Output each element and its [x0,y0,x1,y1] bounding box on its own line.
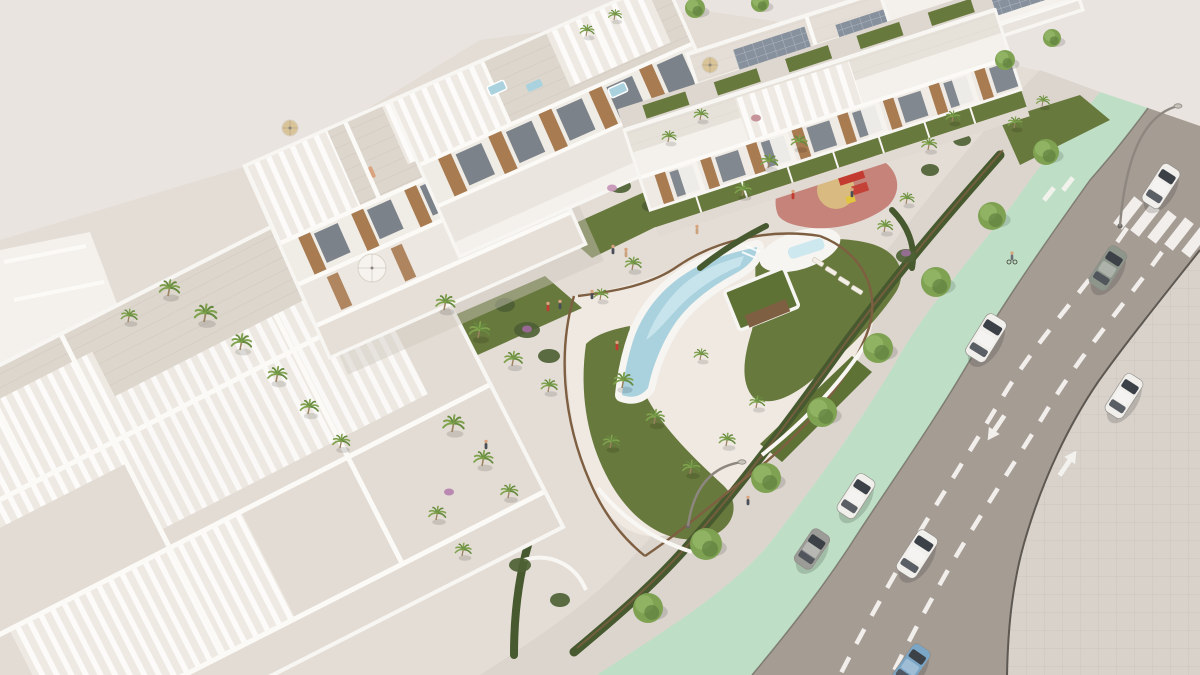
cyclist-head [1010,251,1013,254]
tree-canopy-shade [762,475,777,490]
person-body [747,499,750,505]
tree-canopy-shade [1043,149,1056,162]
person [791,190,794,200]
tree-canopy-shade [702,541,718,557]
palm-shadow [125,321,138,327]
person-body [559,303,562,309]
patio-umbrella [358,254,386,282]
person-body [547,305,550,311]
palm-shadow [508,365,522,371]
palm-shadow [723,445,736,451]
tree-canopy-shade [644,605,659,620]
person [624,248,627,258]
scene-render [0,0,1200,675]
palm-shadow [447,430,464,437]
patio-umbrella [282,120,298,136]
tree-canopy-shade [1050,36,1059,45]
palm-shadow [439,309,454,316]
flower-patch [901,250,911,257]
palm-shadow [617,387,632,394]
palm-shadow [686,473,700,479]
palm-shadow [753,407,765,412]
palm-shadow [504,497,518,503]
person-body [851,191,854,197]
person [558,300,561,310]
person-body [591,293,594,299]
palm-shadow [795,147,808,153]
person [615,341,618,351]
shrub-bed [509,558,531,572]
palm-shadow [881,231,893,236]
palm-shadow [583,36,594,41]
palm-shadow [612,20,622,25]
palm-shadow [304,413,318,419]
palm-shadow [764,167,778,173]
person-body [612,248,615,254]
palm-shadow [607,447,620,453]
palm-shadow [697,360,708,365]
lamp-head [738,460,746,464]
person [484,440,487,450]
palm-shadow [1011,128,1022,133]
person-head [590,290,593,293]
person-body [485,443,488,449]
person [611,245,614,255]
person-body [616,344,619,350]
flower-patch [607,185,617,192]
shrub-bed [550,593,570,607]
tree-canopy-shade [874,345,889,360]
palm-shadow [336,447,350,453]
tree-canopy-shade [989,213,1003,227]
person [590,290,593,300]
palm-shadow [925,149,937,154]
tree-canopy-shade [818,409,833,424]
palm-shadow [949,122,960,127]
flower-patch [751,115,761,122]
person [546,302,549,312]
person-head [791,190,794,193]
person-head [484,440,487,443]
palm-shadow [739,195,752,201]
cyclist-body [1011,255,1014,261]
person [695,225,698,235]
person [850,188,853,198]
person-head [611,245,614,248]
person-head [615,341,618,344]
person-body [696,228,699,234]
palm-shadow [629,269,642,275]
palm-shadow [545,391,558,397]
render-viewport [0,0,1200,675]
palm-shadow [597,300,608,305]
palm-shadow [198,320,216,328]
tree-canopy-shade [932,279,947,294]
palm-shadow [477,465,492,472]
palm-shadow [271,381,286,388]
person-head [695,225,698,228]
palm-shadow [235,349,251,356]
flower-patch [522,326,532,333]
palm-shadow [473,337,489,344]
person-head [624,248,627,251]
umbrella-pole [289,127,292,130]
umbrella-pole [371,267,374,270]
palm-shadow [903,204,914,209]
umbrella-pole [709,64,712,67]
tree-canopy-shade [1003,58,1013,68]
patio-umbrella [702,57,718,73]
shrub-bed [921,164,939,176]
palm-shadow [163,295,179,302]
palm-shadow [650,423,664,429]
shrub-bed [538,349,560,363]
lamp-head [1174,104,1182,108]
person-head [850,188,853,191]
palm-shadow [432,519,446,525]
person-body [792,193,795,199]
person-head [546,302,549,305]
person-head [746,496,749,499]
palm-shadow [459,555,472,561]
person-head [558,300,561,303]
palm-shadow [1040,106,1050,111]
person-body [625,251,628,257]
person [746,496,749,506]
flower-patch [444,489,454,496]
palm-shadow [697,120,708,125]
tree-canopy-shade [693,6,703,16]
palm-shadow [665,142,676,147]
tree-canopy-shade [758,1,767,10]
